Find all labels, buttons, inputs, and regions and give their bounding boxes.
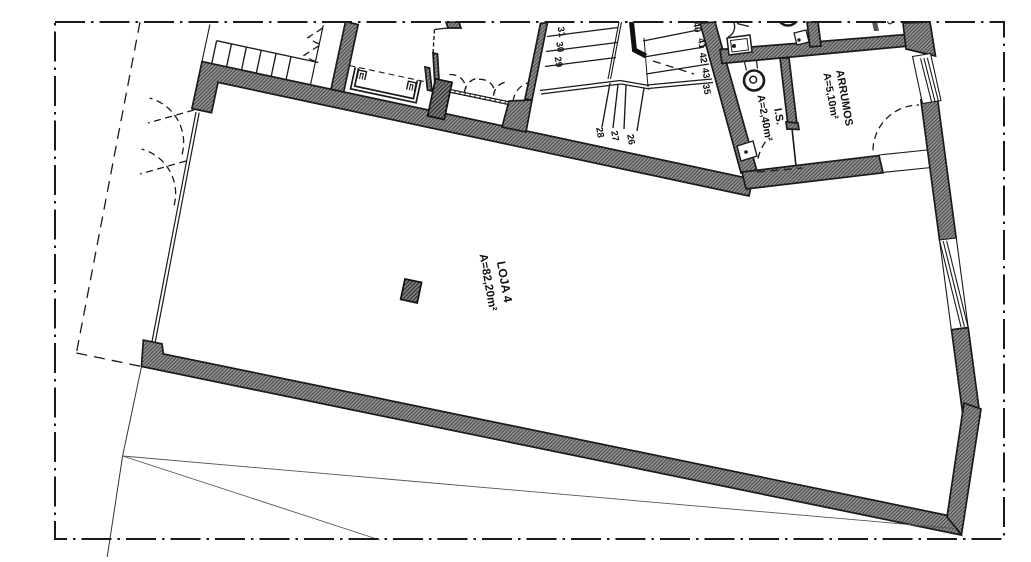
svg-text:43: 43 — [699, 67, 712, 79]
svg-text:30: 30 — [553, 41, 566, 53]
svg-text:27: 27 — [608, 130, 621, 142]
svg-text:40: 40 — [690, 21, 703, 33]
svg-text:29: 29 — [552, 56, 565, 68]
svg-text:42: 42 — [696, 52, 709, 64]
svg-text:26: 26 — [624, 133, 637, 145]
svg-text:28: 28 — [593, 126, 606, 138]
